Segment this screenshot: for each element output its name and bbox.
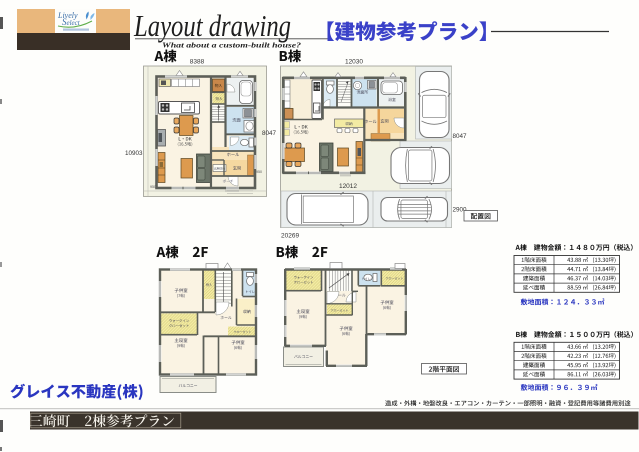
svg-text:Select: Select [62,17,81,27]
svg-text:12030: 12030 [345,59,363,66]
svg-text:What about a custom-built hous: What about a custom-built house? [162,41,301,50]
svg-text:8047: 8047 [262,130,277,137]
svg-text:Layout drawing: Layout drawing [133,8,291,43]
svg-text:950: 950 [150,185,156,189]
svg-text:8047: 8047 [453,133,468,140]
svg-text:950: 950 [256,170,262,174]
svg-text:12012: 12012 [339,183,357,190]
svg-text:20269: 20269 [281,233,299,240]
svg-text:8388: 8388 [190,59,205,66]
svg-text:10903: 10903 [125,150,143,157]
